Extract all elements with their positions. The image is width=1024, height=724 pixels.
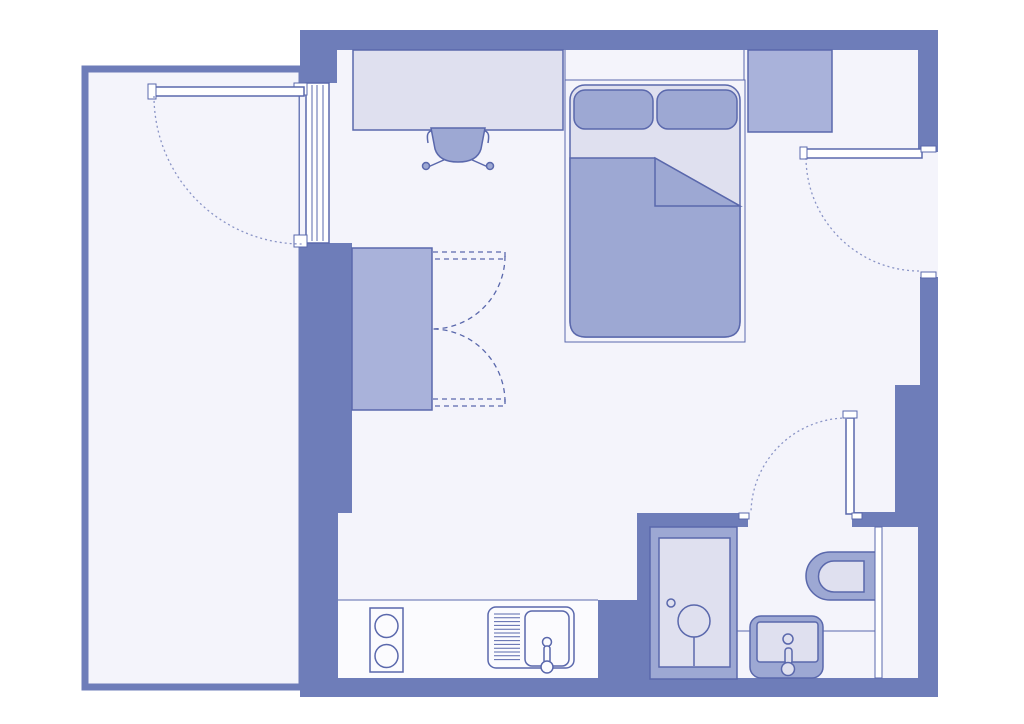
door-jamb xyxy=(739,513,749,519)
wardrobe xyxy=(352,248,432,410)
sink-tap-base xyxy=(541,661,553,673)
door-end-cap xyxy=(148,84,156,99)
basin-tap-stem xyxy=(785,648,792,664)
shower xyxy=(650,527,737,679)
wall-bathroom-top-right xyxy=(852,512,938,527)
balcony-floor xyxy=(85,69,302,687)
wall-bathroom-top-left xyxy=(637,513,748,527)
wall-kitchen-bathroom xyxy=(598,600,650,678)
entrance-door-leaf xyxy=(803,149,922,158)
hob-ring-bottom xyxy=(375,645,398,668)
floor-plan-page xyxy=(0,0,1024,724)
wall-top-left-corner xyxy=(300,30,337,83)
pillow-left xyxy=(574,90,653,129)
double-bed xyxy=(565,50,745,342)
wall-right-lower xyxy=(918,513,938,678)
floor-plan-drawing xyxy=(0,0,1024,724)
wall-left-lower xyxy=(300,513,338,678)
pillow-right xyxy=(657,90,737,129)
wall-left-upper xyxy=(300,243,352,513)
balcony-door-leaf xyxy=(152,87,304,96)
washbasin xyxy=(750,616,823,678)
chair-seat xyxy=(431,128,485,162)
sink-tap-knob xyxy=(543,638,552,647)
chair-foot-right xyxy=(487,163,494,170)
basin-tap-base xyxy=(782,663,795,676)
wall-right-wide xyxy=(895,385,938,513)
desk xyxy=(353,50,563,130)
door-jamb xyxy=(921,272,936,278)
door-end-cap xyxy=(800,147,807,159)
bathroom-door-leaf xyxy=(846,418,854,514)
hob-ring-top xyxy=(375,615,398,638)
balcony-door xyxy=(148,84,304,99)
wall-right-top xyxy=(918,50,938,152)
door-end-cap xyxy=(843,411,857,418)
storage-closet xyxy=(748,50,832,132)
kitchen-sink xyxy=(488,607,574,673)
bathroom-partition-wall xyxy=(875,527,882,678)
shower-head xyxy=(678,605,710,637)
chair-foot-left xyxy=(423,163,430,170)
door-jamb xyxy=(294,235,307,247)
wall-top xyxy=(300,30,938,50)
wall-right-middle xyxy=(920,277,938,385)
toilet xyxy=(806,552,877,600)
hob xyxy=(370,608,403,672)
toilet-bowl xyxy=(819,561,865,592)
wall-bottom xyxy=(300,678,938,697)
door-jamb xyxy=(921,146,936,152)
shower-control xyxy=(667,599,675,607)
basin-tap-knob xyxy=(783,634,793,644)
door-jamb xyxy=(852,513,862,519)
